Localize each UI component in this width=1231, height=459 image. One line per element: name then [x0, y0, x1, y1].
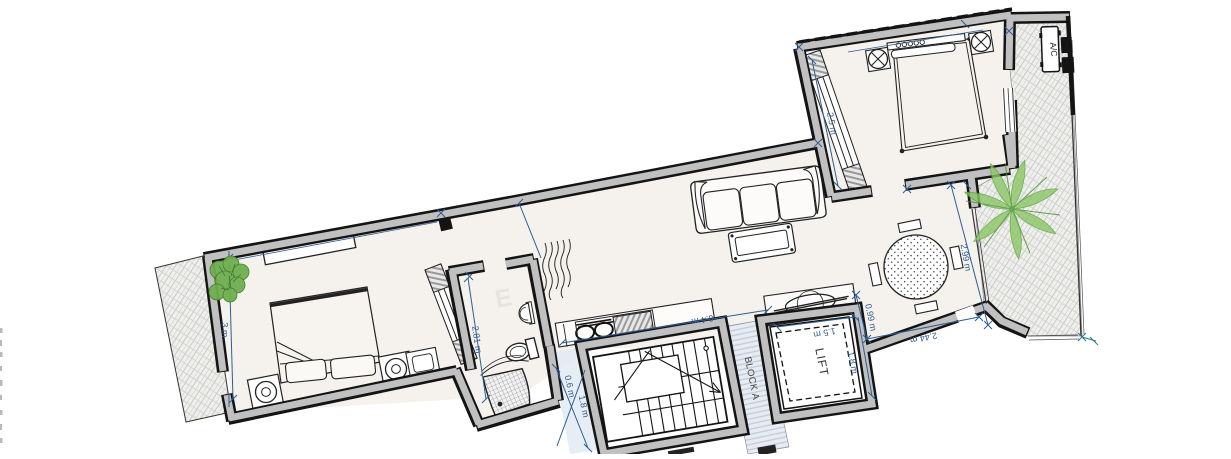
svg-text:3 m: 3 m: [220, 322, 231, 337]
svg-text:A/C: A/C: [1048, 42, 1059, 57]
